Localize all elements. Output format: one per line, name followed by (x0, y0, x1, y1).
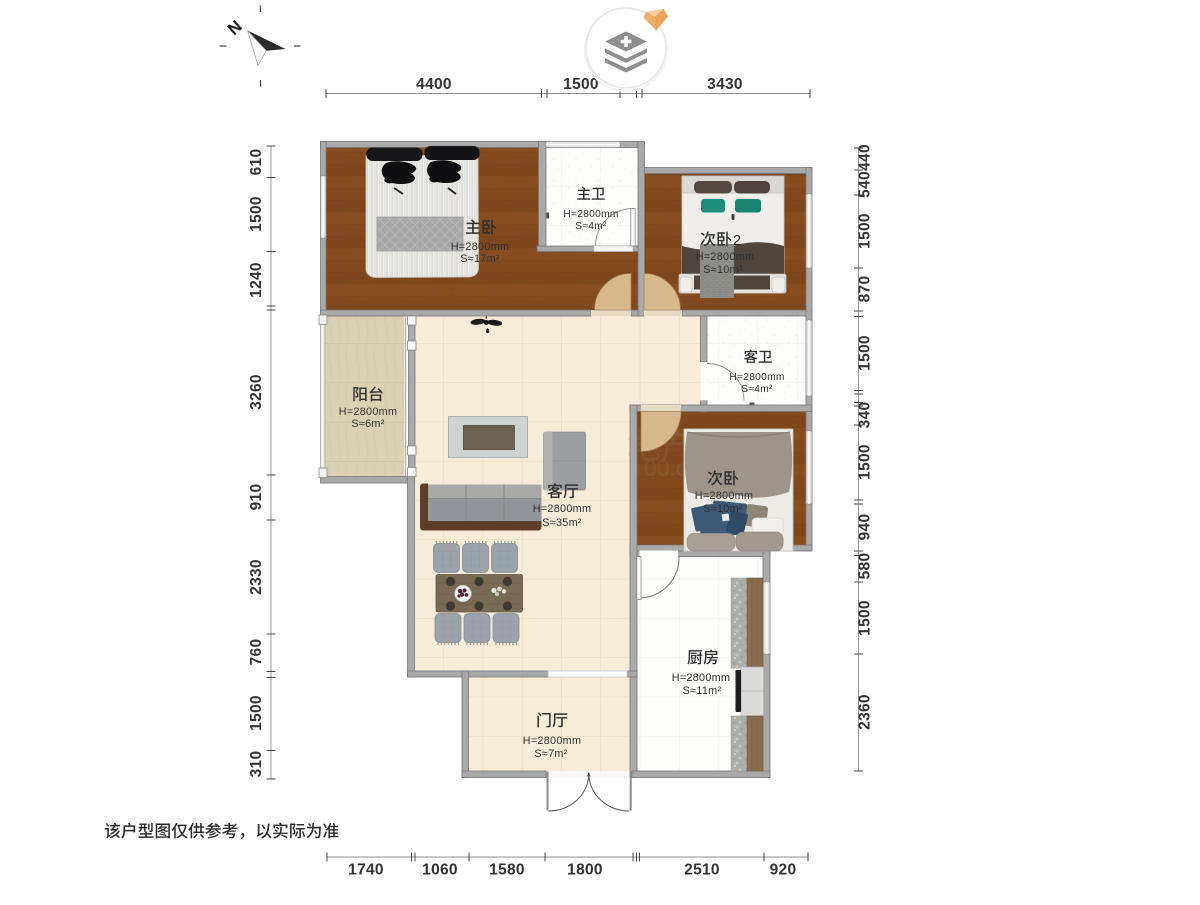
svg-text:1740: 1740 (348, 862, 384, 879)
svg-text:H=2800mm: H=2800mm (729, 372, 784, 383)
svg-text:1240: 1240 (248, 262, 265, 298)
svg-text:540: 540 (857, 171, 874, 198)
svg-text:1500: 1500 (857, 213, 874, 249)
svg-text:1500: 1500 (248, 695, 265, 731)
svg-text:760: 760 (248, 639, 265, 666)
svg-text:S≈4m²: S≈4m² (741, 384, 773, 395)
svg-text:H=2800mm: H=2800mm (563, 209, 618, 220)
svg-text:4400: 4400 (416, 76, 452, 93)
svg-text:S≈11m²: S≈11m² (683, 685, 722, 697)
svg-text:S≈7m²: S≈7m² (534, 748, 567, 760)
svg-text:H=2800mm: H=2800mm (339, 406, 398, 418)
svg-text:S≈6m²: S≈6m² (351, 418, 384, 430)
svg-text:S≈4m²: S≈4m² (575, 221, 607, 232)
svg-text:1500: 1500 (248, 196, 265, 232)
svg-text:440: 440 (857, 144, 874, 171)
svg-text:870: 870 (857, 276, 874, 303)
svg-text:920: 920 (770, 862, 797, 879)
svg-text:3430: 3430 (707, 76, 743, 93)
svg-text:S≈10m²: S≈10m² (703, 264, 743, 276)
svg-text:2360: 2360 (857, 694, 874, 730)
svg-text:H=2800mm: H=2800mm (533, 503, 592, 515)
svg-text:S≈35m²: S≈35m² (542, 517, 582, 529)
svg-text:1500: 1500 (857, 444, 874, 480)
svg-text:3260: 3260 (248, 374, 265, 410)
svg-text:1580: 1580 (489, 862, 525, 879)
svg-text:910: 910 (248, 484, 265, 511)
svg-text:1500: 1500 (563, 76, 599, 93)
svg-text:340: 340 (857, 402, 874, 429)
svg-text:2: 2 (733, 233, 741, 249)
svg-text:S≈17m²: S≈17m² (460, 253, 500, 265)
svg-text:H=2800mm: H=2800mm (696, 251, 755, 263)
svg-text:1500: 1500 (857, 335, 874, 371)
svg-text:2330: 2330 (248, 559, 265, 595)
svg-text:H=2800mm: H=2800mm (695, 490, 754, 502)
svg-text:H=2800mm: H=2800mm (672, 672, 731, 684)
svg-text:H=2800mm: H=2800mm (451, 241, 510, 253)
svg-text:940: 940 (857, 514, 874, 541)
svg-text:1800: 1800 (567, 862, 603, 879)
svg-text:580: 580 (857, 553, 874, 580)
svg-text:1500: 1500 (857, 600, 874, 636)
svg-text:1060: 1060 (422, 862, 458, 879)
svg-text:H=2800mm: H=2800mm (523, 735, 582, 747)
svg-text:610: 610 (248, 149, 265, 176)
svg-text:2510: 2510 (684, 862, 720, 879)
svg-text:310: 310 (248, 751, 265, 778)
svg-text:S≈10m²: S≈10m² (703, 503, 743, 515)
